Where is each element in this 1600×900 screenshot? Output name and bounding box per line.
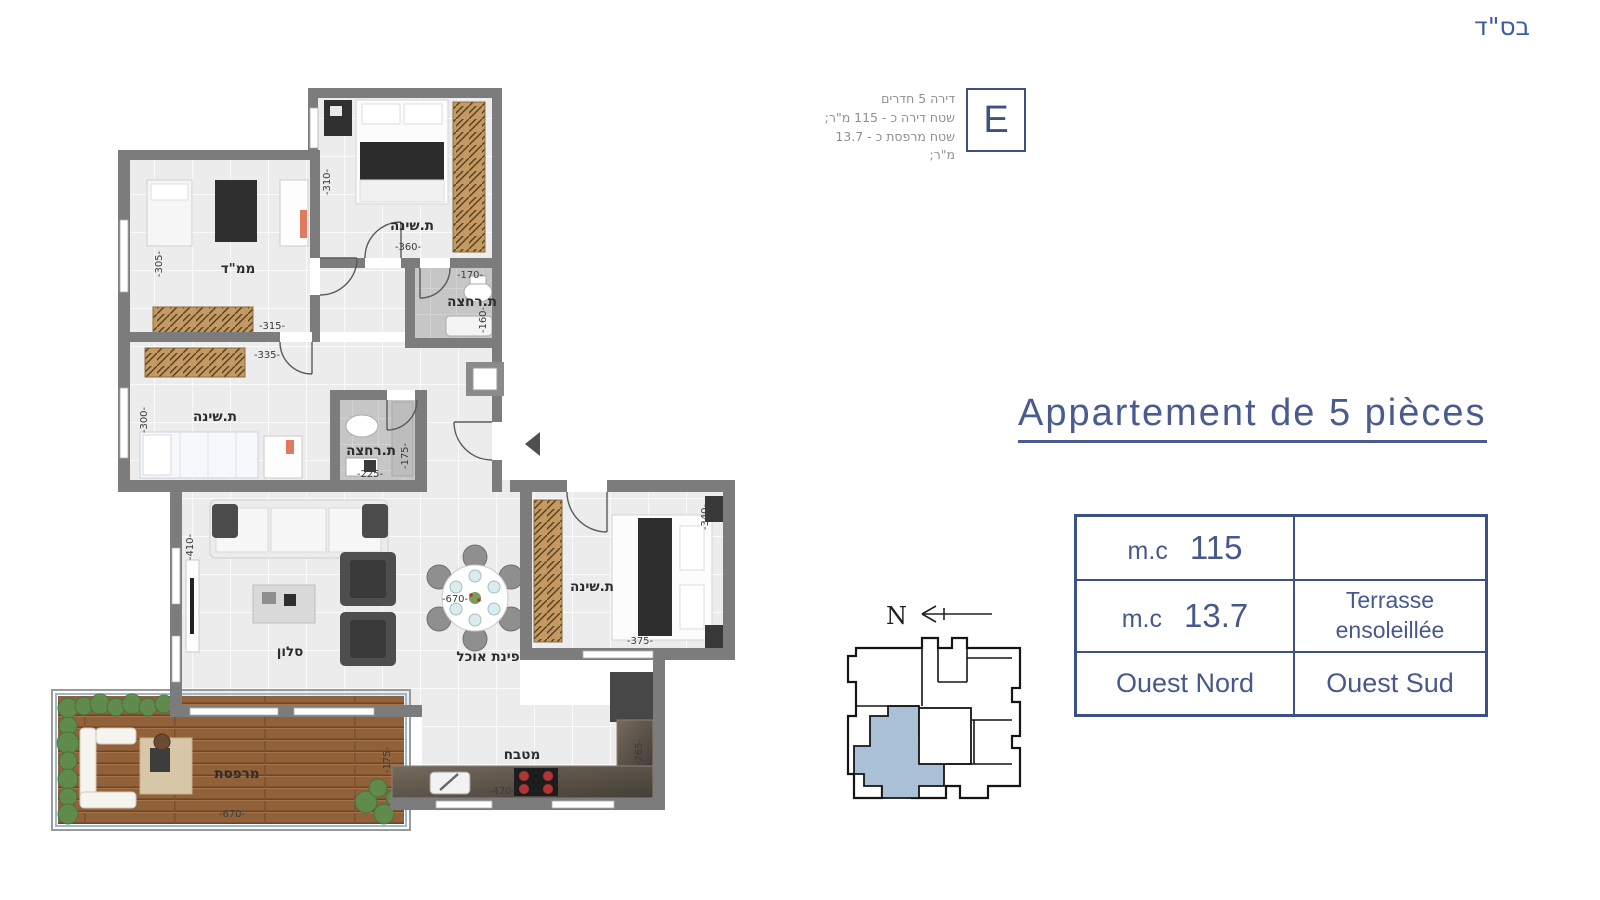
room-label-dining: פינת אוכל	[456, 649, 519, 665]
north-arrow-icon: N	[886, 602, 992, 630]
room-label-bath-mid: ת.רחצה	[346, 443, 396, 459]
bsd-text: בס"ד	[1440, 12, 1530, 41]
dim-bath-mid-w: -225-	[357, 469, 384, 480]
room-label-bedroom-right: ת.שינה	[570, 579, 614, 595]
unit-letter: E	[983, 99, 1008, 142]
terrace-desc-line2: ensoleillée	[1295, 616, 1485, 646]
key-plan: N	[824, 592, 1036, 854]
shaft	[466, 362, 504, 396]
floor-plan: מרפסת -670- -175-	[40, 80, 740, 840]
table-cell-terrace-area: m.c 13.7	[1076, 580, 1295, 652]
dim-bedroom-right-h: -340-	[700, 503, 711, 530]
room-label-mamad: ממ"ד	[221, 261, 256, 277]
room-label-bath-top: ת.רחצה	[447, 294, 497, 310]
dim-bath-mid-h: -175-	[400, 442, 411, 469]
info-table: m.c 115 m.c 13.7 Terrasse ensoleillée	[1074, 514, 1488, 717]
dim-bedroom-top-h: -310-	[322, 168, 333, 195]
unit-letter-badge: E	[966, 88, 1026, 152]
room-label-salon: סלון	[277, 644, 304, 660]
building-outline	[848, 638, 1020, 798]
page-title: Appartement de 5 pièces	[1018, 392, 1487, 443]
spec-line-1: דירה 5 חדרים	[820, 90, 955, 109]
dim-bedroom-mid-w: -335-	[254, 350, 281, 361]
dim-bath-top-w: -170-	[457, 270, 484, 281]
dim-mamad-w: -315-	[259, 321, 286, 332]
table-cell-orientation-left: Ouest Nord	[1076, 652, 1295, 716]
table-cell-orientation-right: Ouest Sud	[1294, 652, 1487, 716]
table-cell-area: m.c 115	[1076, 516, 1295, 580]
dim-bath-top-h: -160-	[478, 306, 489, 333]
dim-kitchen-w: -470-	[489, 786, 516, 797]
area-value: 115	[1190, 529, 1243, 567]
dim-kitchen-h: -265-	[634, 738, 645, 765]
dim-salon-w: -670-	[442, 594, 469, 605]
entrance-arrow-icon	[525, 432, 540, 456]
table-cell-terrace-desc: Terrasse ensoleillée	[1294, 580, 1487, 652]
spec-line-2: שטח דירה כ - 115 מ"ר;	[820, 109, 955, 128]
terrace-desc-line1: Terrasse	[1295, 586, 1485, 616]
room-label-bedroom-mid: ת.שינה	[193, 409, 237, 425]
north-label: N	[886, 602, 907, 630]
unit-spec-block: דירה 5 חדרים שטח דירה כ - 115 מ"ר; שטח מ…	[820, 90, 955, 165]
terrace-value: 13.7	[1184, 597, 1248, 635]
dim-bedroom-right-w: -375-	[627, 636, 654, 647]
table-cell-empty	[1294, 516, 1487, 580]
room-label-bedroom-top: ת.שינה	[390, 218, 434, 234]
room-label-kitchen: מטבח	[504, 747, 540, 763]
dim-terrace-width: -670-	[219, 809, 246, 820]
dim-mamad-h: -305-	[154, 250, 165, 277]
terrace-unit: m.c	[1122, 605, 1162, 634]
dim-bedroom-top-w: -360-	[395, 242, 422, 253]
spec-line-3: שטח מרפסת כ - 13.7 מ"ר;	[820, 128, 955, 166]
dim-bedroom-mid-h: -300-	[139, 406, 150, 433]
room-label-terrace: מרפסת	[214, 766, 259, 782]
page: בס"ד דירה 5 חדרים שטח דירה כ - 115 מ"ר; …	[0, 0, 1600, 900]
area-unit: m.c	[1128, 537, 1168, 566]
dim-terrace-height: -175-	[382, 746, 393, 773]
dim-salon-h: -410-	[185, 533, 196, 560]
